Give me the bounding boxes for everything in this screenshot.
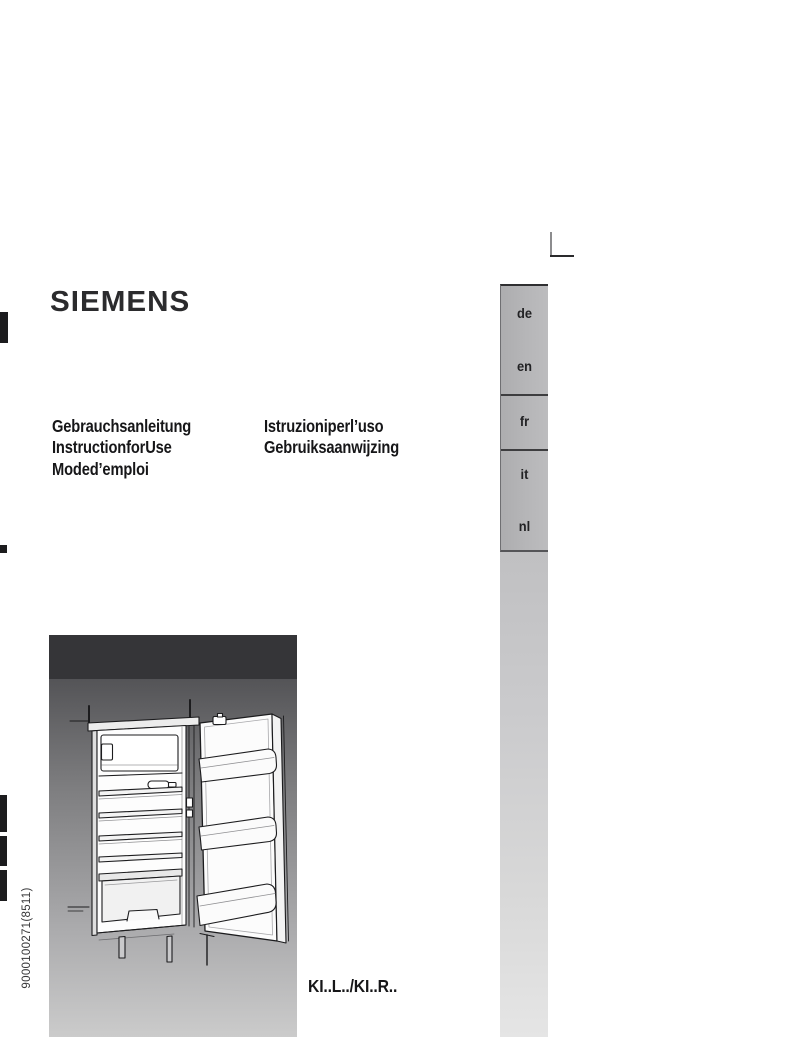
language-tab-en: en: [503, 358, 546, 374]
language-tab-nl: nl: [503, 518, 546, 534]
language-tab-de: de: [503, 305, 546, 321]
language-tab-divider: [501, 394, 548, 396]
sidebar-gradient-column: [500, 552, 548, 1037]
refrigerator-figure: [49, 635, 297, 1037]
title-dutch: Gebruiksaanwijzing: [264, 437, 399, 458]
model-code: KI..L../KI..R..: [308, 976, 397, 997]
crop-mark-vertical: [550, 232, 552, 257]
language-index-bar: de en fr it nl: [500, 284, 548, 552]
language-tab-it: it: [503, 466, 546, 482]
brand-logo: SIEMENS: [50, 286, 190, 319]
title-german: Gebrauchsanleitung: [52, 416, 191, 437]
title-column-left: Gebrauchsanleitung InstructionforUse Mod…: [52, 416, 191, 480]
print-mark: [0, 836, 7, 866]
refrigerator-drawing: [68, 700, 289, 965]
language-tab-fr: fr: [503, 413, 546, 429]
title-french: Moded’emploi: [52, 459, 191, 480]
print-mark: [0, 312, 8, 343]
language-tab-divider: [501, 449, 548, 451]
print-mark: [0, 870, 7, 901]
document-number: 9000100271(8511): [21, 887, 33, 988]
title-column-right: Istruzioniperl’uso Gebruiksaanwijzing: [264, 416, 399, 459]
print-mark: [0, 545, 7, 553]
figure-header-band: [49, 635, 297, 683]
title-italian: Istruzioniperl’uso: [264, 416, 399, 437]
manual-cover-page: SIEMENS Gebrauchsanleitung Instructionfo…: [0, 0, 802, 1037]
print-mark: [0, 795, 7, 832]
title-english: InstructionforUse: [52, 437, 191, 458]
crop-mark-horizontal: [550, 255, 574, 257]
